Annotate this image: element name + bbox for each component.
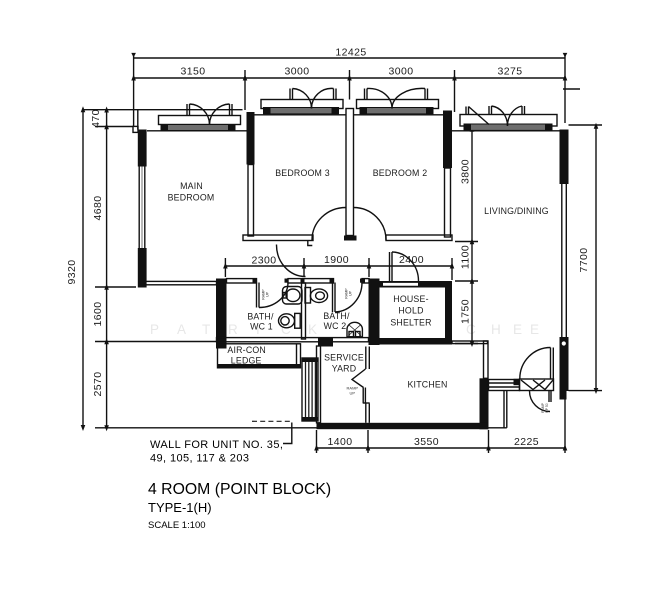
svg-text:BEDROOM 2: BEDROOM 2	[373, 168, 428, 178]
svg-text:1100: 1100	[460, 245, 472, 269]
svg-text:1600: 1600	[92, 302, 104, 327]
svg-text:HOUSE-: HOUSE-	[393, 294, 428, 304]
svg-text:3150: 3150	[181, 66, 206, 78]
svg-text:3550: 3550	[414, 436, 439, 448]
svg-text:WC 1: WC 1	[250, 322, 273, 332]
svg-text:E: E	[530, 322, 539, 337]
svg-text:2400: 2400	[399, 254, 424, 266]
svg-text:YARD: YARD	[332, 364, 357, 374]
svg-text:HOLD: HOLD	[398, 306, 423, 316]
svg-text:LIVING/DINING: LIVING/DINING	[484, 206, 549, 216]
svg-text:12425: 12425	[335, 47, 366, 59]
svg-text:7700: 7700	[578, 248, 590, 273]
svg-text:9320: 9320	[66, 260, 78, 285]
svg-text:WALL FOR UNIT NO. 35,: WALL FOR UNIT NO. 35,	[150, 439, 283, 451]
svg-text:1400: 1400	[328, 436, 353, 448]
svg-text:AIR-CON: AIR-CON	[227, 345, 266, 355]
svg-text:3000: 3000	[389, 66, 414, 78]
svg-text:4680: 4680	[92, 196, 104, 221]
svg-text:KITCHEN: KITCHEN	[407, 380, 447, 390]
svg-text:4 ROOM (POINT BLOCK): 4 ROOM (POINT BLOCK)	[148, 481, 331, 498]
svg-text:MAIN: MAIN	[180, 181, 203, 191]
svg-text:3275: 3275	[498, 66, 523, 78]
svg-text:1900: 1900	[324, 254, 349, 266]
svg-text:BEDROOM 3: BEDROOM 3	[275, 168, 330, 178]
svg-text:P: P	[150, 322, 159, 337]
svg-text:T: T	[202, 322, 210, 337]
svg-text:BATH/: BATH/	[247, 312, 274, 322]
svg-text:UP: UP	[266, 291, 270, 297]
svg-text:2300: 2300	[252, 255, 277, 267]
svg-text:2225: 2225	[514, 436, 539, 448]
svg-text:49, 105, 117 & 203: 49, 105, 117 & 203	[150, 453, 249, 465]
svg-text:BATH/: BATH/	[323, 311, 350, 321]
svg-text:3000: 3000	[285, 66, 310, 78]
svg-text:A: A	[177, 322, 186, 337]
svg-text:K: K	[308, 322, 317, 337]
svg-text:R: R	[228, 322, 238, 337]
svg-text:1750: 1750	[460, 299, 472, 324]
svg-text:UP: UP	[349, 290, 353, 296]
svg-text:TYPE-1(H): TYPE-1(H)	[148, 500, 212, 515]
svg-text:WC 2: WC 2	[324, 321, 347, 331]
svg-text:UP 50: UP 50	[545, 403, 549, 412]
svg-text:470: 470	[90, 109, 102, 128]
svg-text:LEDGE: LEDGE	[231, 356, 262, 366]
svg-text:3800: 3800	[460, 159, 472, 184]
svg-text:UP: UP	[350, 391, 356, 396]
svg-text:SHELTER: SHELTER	[390, 318, 431, 328]
svg-text:SERVICE: SERVICE	[324, 353, 364, 363]
svg-text:BEDROOM: BEDROOM	[168, 193, 215, 203]
svg-text:SCALE 1:100: SCALE 1:100	[148, 520, 206, 531]
svg-text:E: E	[513, 322, 522, 337]
svg-text:2570: 2570	[92, 372, 104, 397]
svg-text:H: H	[491, 322, 501, 337]
